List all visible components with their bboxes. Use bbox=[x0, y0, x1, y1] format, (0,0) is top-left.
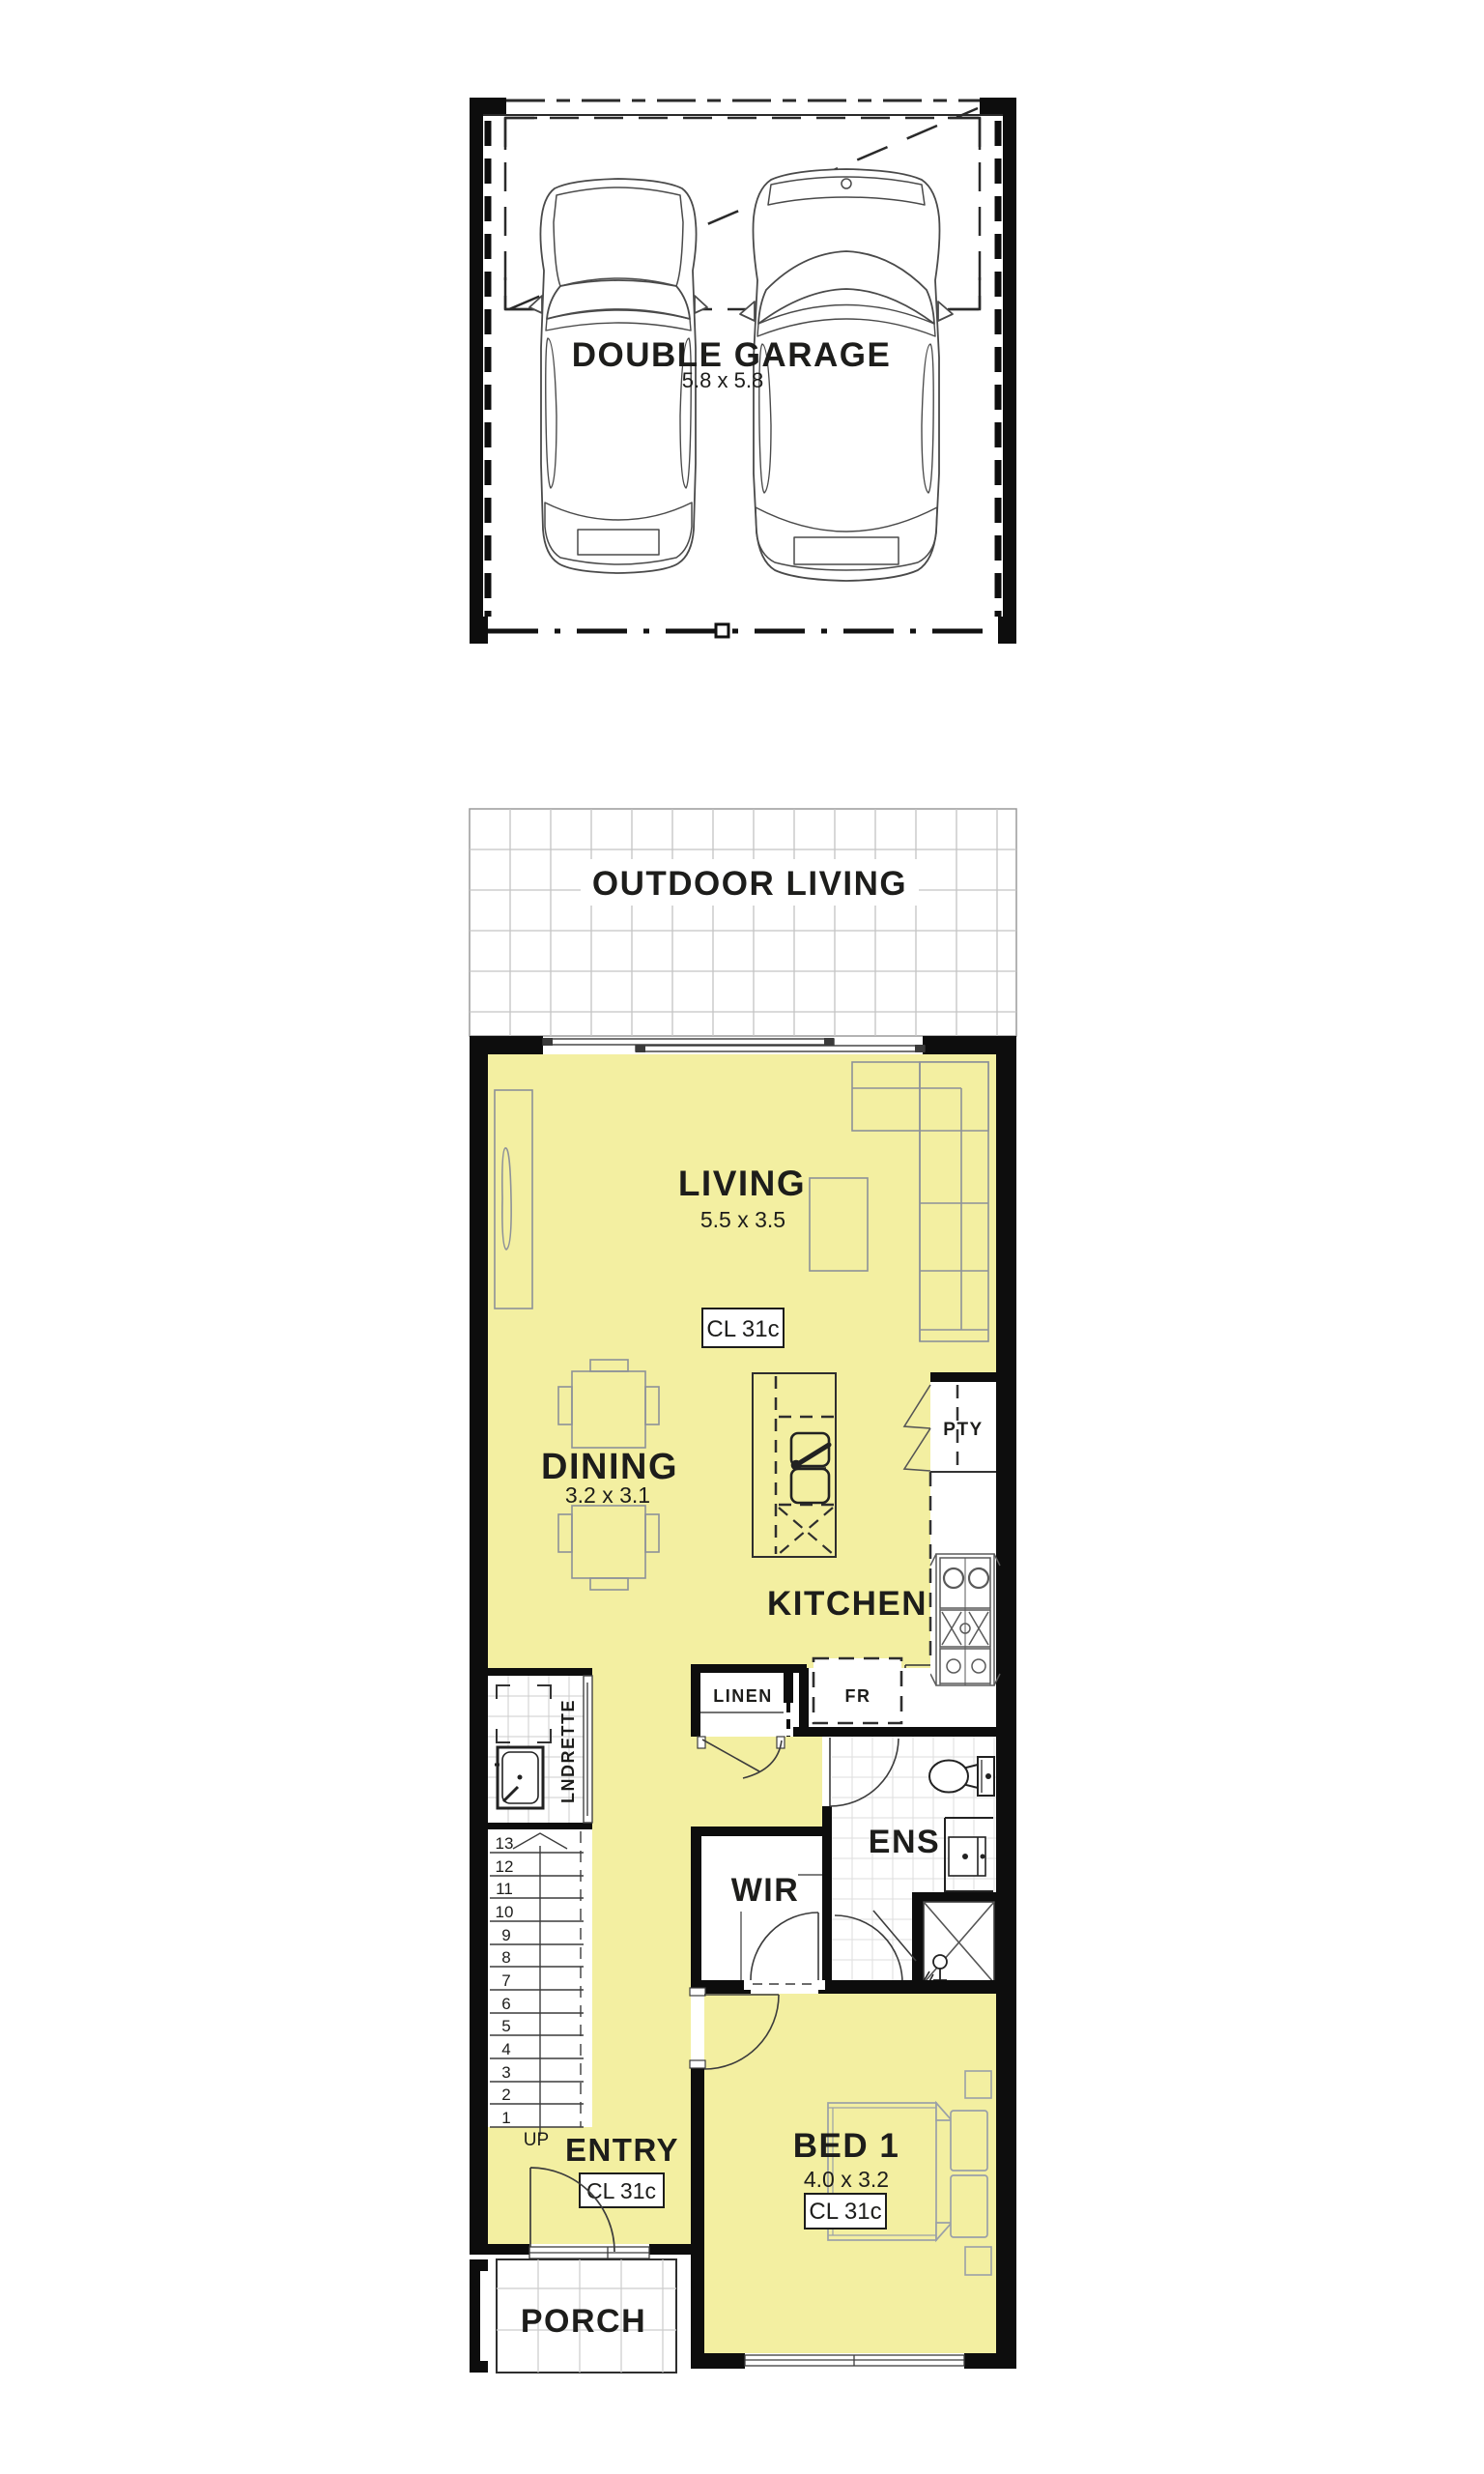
svg-text:2: 2 bbox=[501, 2086, 510, 2104]
svg-text:UP: UP bbox=[524, 2130, 549, 2150]
svg-text:BED 1: BED 1 bbox=[793, 2127, 900, 2165]
svg-text:DINING: DINING bbox=[541, 1447, 678, 1487]
svg-text:FR: FR bbox=[845, 1686, 871, 1706]
svg-text:PORCH: PORCH bbox=[521, 2303, 646, 2340]
svg-text:LNDRETTE: LNDRETTE bbox=[558, 1699, 578, 1803]
svg-text:5.5 x 3.5: 5.5 x 3.5 bbox=[700, 1207, 785, 1232]
svg-text:PTY: PTY bbox=[943, 1420, 983, 1440]
svg-text:CL 31c: CL 31c bbox=[809, 2199, 881, 2225]
svg-text:6: 6 bbox=[501, 1995, 510, 2013]
svg-text:12: 12 bbox=[496, 1857, 514, 1876]
svg-text:3: 3 bbox=[501, 2063, 510, 2082]
svg-text:5: 5 bbox=[501, 2017, 510, 2035]
svg-text:ENS: ENS bbox=[869, 1824, 940, 1860]
svg-text:4: 4 bbox=[501, 2040, 510, 2058]
svg-text:OUTDOOR LIVING: OUTDOOR LIVING bbox=[592, 865, 907, 903]
svg-text:9: 9 bbox=[501, 1926, 510, 1944]
svg-text:13: 13 bbox=[496, 1834, 514, 1853]
svg-text:4.0 x 3.2: 4.0 x 3.2 bbox=[804, 2167, 889, 2192]
svg-text:LINEN: LINEN bbox=[713, 1686, 773, 1706]
svg-text:ENTRY: ENTRY bbox=[565, 2132, 679, 2168]
svg-text:CL 31c: CL 31c bbox=[706, 1316, 779, 1342]
svg-text:11: 11 bbox=[496, 1880, 513, 1898]
svg-text:8: 8 bbox=[501, 1948, 510, 1967]
svg-text:10: 10 bbox=[496, 1903, 514, 1921]
svg-text:1: 1 bbox=[501, 2109, 510, 2127]
svg-text:3.2 x 3.1: 3.2 x 3.1 bbox=[565, 1482, 650, 1508]
svg-text:LIVING: LIVING bbox=[678, 1164, 806, 1203]
svg-text:WIR: WIR bbox=[731, 1872, 800, 1909]
svg-text:KITCHEN: KITCHEN bbox=[767, 1585, 927, 1623]
svg-text:7: 7 bbox=[501, 1971, 510, 1990]
svg-text:5.8 x 5.8: 5.8 x 5.8 bbox=[682, 368, 763, 392]
